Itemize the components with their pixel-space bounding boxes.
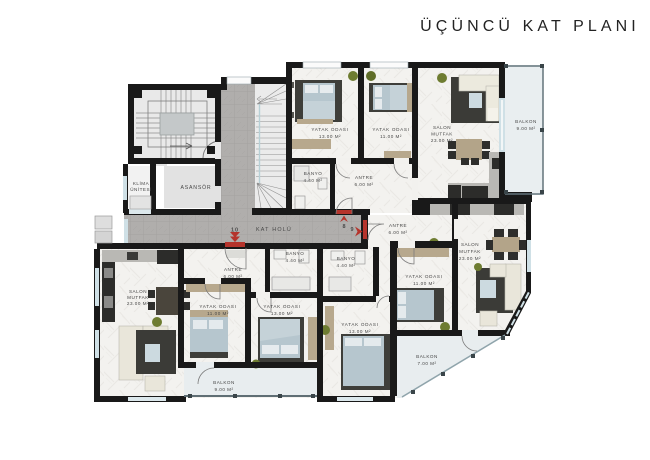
svg-text:23.00 M²: 23.00 M² [431, 138, 453, 143]
svg-text:6.00 M²: 6.00 M² [388, 230, 407, 235]
svg-text:9: 9 [350, 227, 353, 233]
svg-text:ASANSÖR: ASANSÖR [181, 184, 212, 191]
svg-text:YATAK ODASI: YATAK ODASI [263, 304, 300, 309]
svg-text:4.40 M²: 4.40 M² [303, 178, 322, 183]
svg-text:4.40 M²: 4.40 M² [336, 263, 355, 268]
svg-text:ÜNİTESİ: ÜNİTESİ [130, 186, 152, 192]
svg-text:8: 8 [342, 224, 345, 230]
svg-text:23.00 M²: 23.00 M² [459, 256, 481, 261]
svg-text:YATAK ODASI: YATAK ODASI [341, 322, 378, 327]
svg-text:BALKON: BALKON [213, 380, 235, 385]
svg-text:MUTFAK: MUTFAK [459, 249, 481, 254]
svg-text:YATAK ODASI: YATAK ODASI [199, 304, 236, 309]
svg-text:9.00 M²: 9.00 M² [516, 126, 535, 131]
svg-text:7.00 M²: 7.00 M² [417, 361, 436, 366]
svg-text:SALON: SALON [461, 242, 479, 247]
svg-text:YATAK ODASI: YATAK ODASI [405, 274, 442, 279]
svg-text:ANTRE: ANTRE [389, 223, 407, 228]
svg-text:13.00 M²: 13.00 M² [271, 311, 293, 316]
svg-text:4.40 M²: 4.40 M² [285, 258, 304, 263]
svg-text:11.00 M²: 11.00 M² [380, 134, 402, 139]
svg-text:SALON: SALON [433, 125, 451, 130]
svg-text:9.00 M²: 9.00 M² [214, 387, 233, 392]
svg-text:SALON: SALON [129, 289, 147, 294]
svg-text:23.00 M²: 23.00 M² [127, 301, 149, 306]
svg-text:11.00 M²: 11.00 M² [413, 281, 435, 286]
svg-text:KLİMA: KLİMA [133, 180, 150, 186]
svg-text:BANYO: BANYO [304, 171, 323, 176]
svg-text:BALKON: BALKON [416, 354, 438, 359]
svg-text:BANYO: BANYO [286, 251, 305, 256]
svg-text:11.00 M²: 11.00 M² [207, 311, 229, 316]
svg-text:BALKON: BALKON [515, 119, 537, 124]
svg-text:ANTRE: ANTRE [224, 267, 242, 272]
svg-text:13.00 M²: 13.00 M² [349, 329, 371, 334]
svg-text:ANTRE: ANTRE [355, 175, 373, 180]
svg-text:6.00 M²: 6.00 M² [354, 182, 373, 187]
svg-text:13.00 M²: 13.00 M² [319, 134, 341, 139]
svg-text:KAT HOLÜ: KAT HOLÜ [256, 226, 292, 233]
svg-text:6.00 M²: 6.00 M² [223, 274, 242, 279]
svg-text:YATAK ODASI: YATAK ODASI [311, 127, 348, 132]
svg-text:BANYO: BANYO [337, 256, 356, 261]
svg-text:YATAK ODASI: YATAK ODASI [372, 127, 409, 132]
svg-text:MUTFAK: MUTFAK [431, 132, 453, 137]
svg-text:10: 10 [231, 228, 239, 234]
svg-text:ÜÇÜNCÜ KAT PLANI: ÜÇÜNCÜ KAT PLANI [420, 17, 640, 35]
svg-text:MUTFAK: MUTFAK [127, 295, 149, 300]
